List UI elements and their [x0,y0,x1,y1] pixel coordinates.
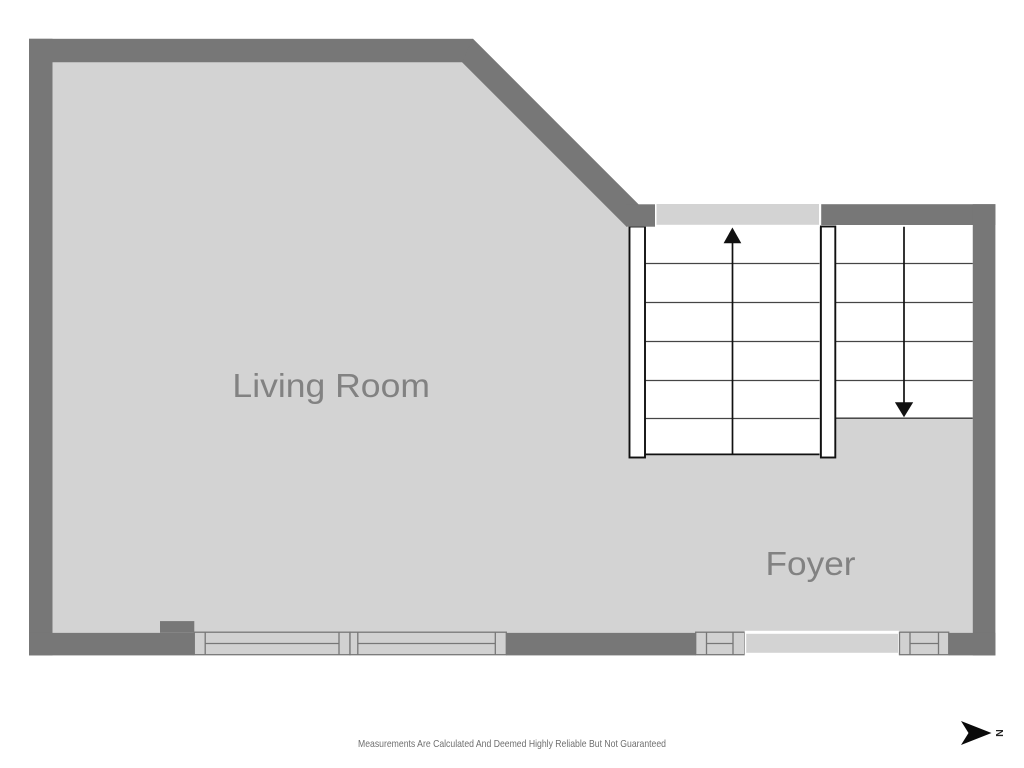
svg-text:Foyer: Foyer [766,545,856,582]
svg-text:N: N [993,729,1005,737]
svg-text:Measurements Are Calculated An: Measurements Are Calculated And Deemed H… [358,738,666,750]
svg-text:Living Room: Living Room [232,367,430,404]
